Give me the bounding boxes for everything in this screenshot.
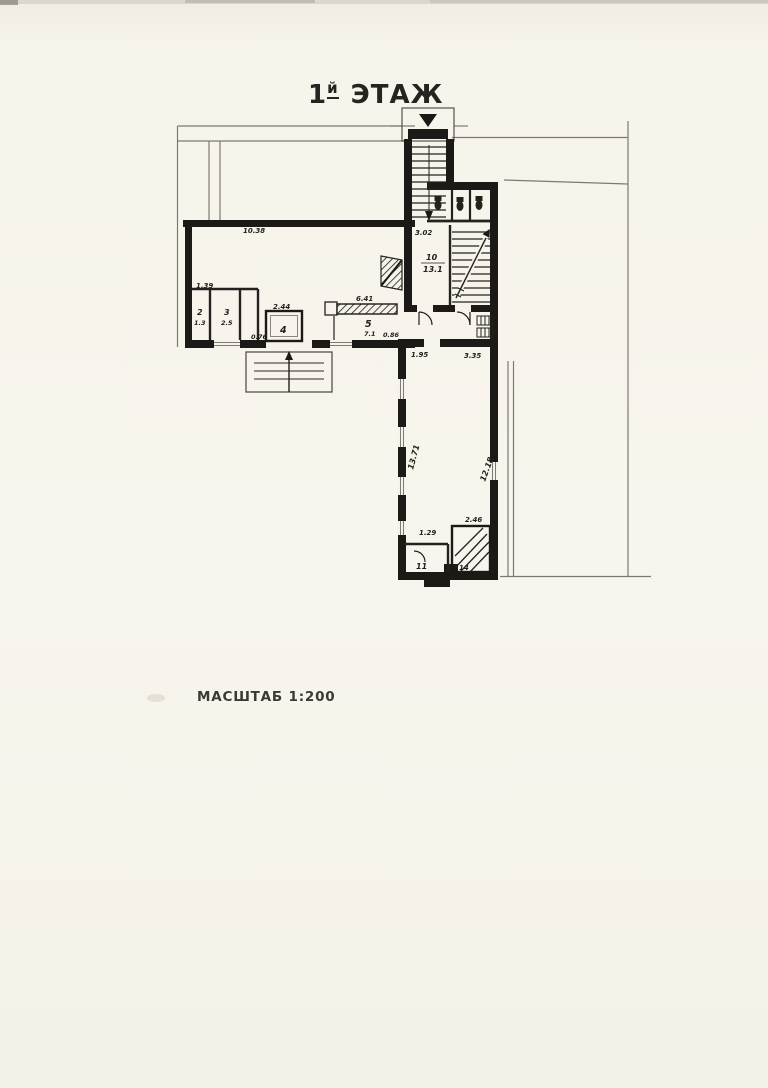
entrance-canopy: [402, 108, 454, 141]
toilet-fixture-icon: [435, 200, 442, 210]
dim-wing-left: 13.71: [406, 444, 421, 471]
toilet-fixture-icon: [457, 201, 464, 211]
room2-number: 2: [197, 308, 203, 317]
room5-area: 7.1: [364, 330, 376, 338]
dim-076: 0.76: [251, 333, 268, 341]
canopy-arrow-icon: [419, 114, 437, 127]
dim-hall-width: 10.38: [243, 227, 265, 235]
room3-number: 3: [224, 308, 230, 317]
toilet-fixture-icon: [476, 200, 483, 210]
floorplan-drawing: 10.38 1.39 2 1.3 3 2.5 0.76 2.44 4 6.41 …: [0, 0, 768, 1088]
door-swing-arc: [414, 551, 425, 562]
dim-335: 3.35: [464, 352, 481, 360]
dim-302: 3.02: [415, 229, 432, 237]
entry-porch: [246, 351, 332, 392]
door-swing-arc: [457, 312, 470, 325]
stair-down-arrow-icon: [425, 211, 433, 221]
dim-129: 1.29: [419, 529, 436, 537]
room11-number: 11: [416, 562, 427, 571]
room4-number: 4: [279, 325, 287, 336]
door-swings: [414, 312, 470, 562]
scan-artifacts: [0, 0, 768, 702]
room10-area: 13.1: [423, 265, 443, 274]
room3-area: 2.5: [221, 319, 233, 327]
room14-number: 14: [459, 564, 469, 572]
wing-stair: [452, 526, 490, 572]
room10-number: 10: [426, 253, 438, 262]
dim-195: 1.95: [411, 351, 428, 359]
dim-086: 0.86: [383, 331, 400, 339]
staircase-right: [452, 227, 493, 302]
thick-walls: [183, 139, 498, 587]
dim-641: 6.41: [356, 295, 373, 303]
door-swing-arc: [419, 312, 432, 325]
dim-left-top: 1.39: [196, 282, 213, 290]
room5-number: 5: [365, 319, 372, 330]
ramp-symbol: [381, 256, 402, 290]
dim-244: 2.44: [273, 303, 290, 311]
room2-area: 1.3: [194, 319, 206, 327]
counter-strip: [325, 302, 397, 315]
dim-246: 2.46: [465, 516, 482, 524]
